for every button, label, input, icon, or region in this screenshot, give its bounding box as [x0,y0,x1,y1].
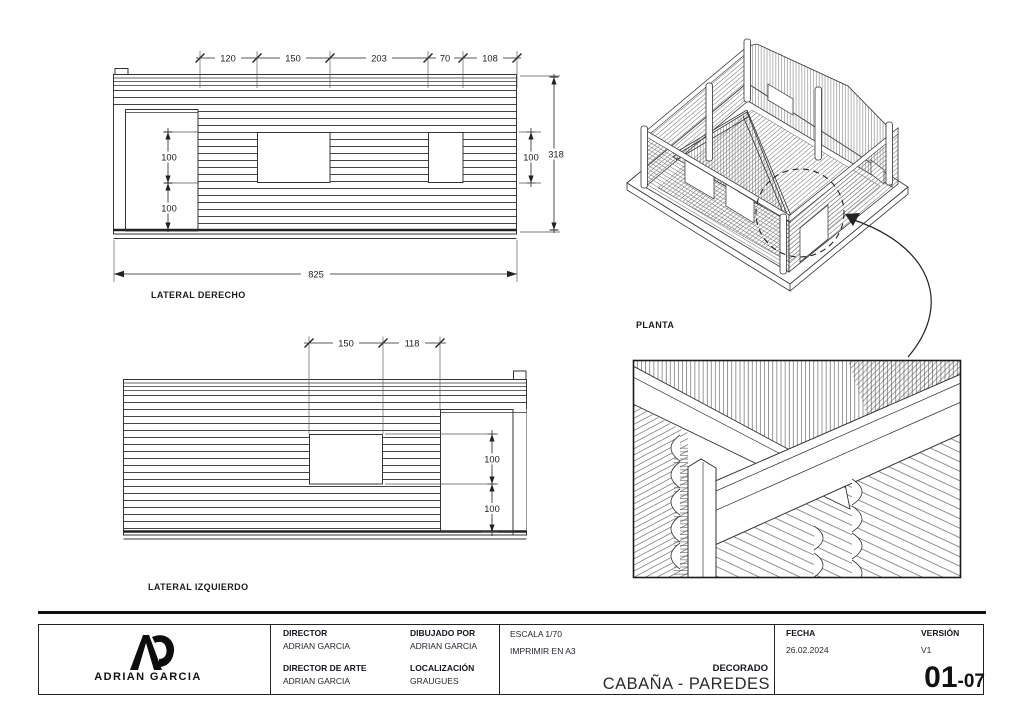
location-label: LOCALIZACIÓN [410,663,474,673]
isometric-cabin-view [600,15,985,360]
elevation-lateral-derecho: 120 150 203 70 108 100 100 100 318 825 [95,40,580,315]
set-title: CABAÑA - PAREDES [510,675,770,694]
label-lateral-derecho: LATERAL DERECHO [151,290,246,300]
title-block-divider [774,624,775,695]
svg-text:100: 100 [523,153,539,163]
label-lateral-izquierdo: LATERAL IZQUIERDO [148,582,248,592]
detail-leader-line [851,219,931,357]
svg-text:825: 825 [308,270,324,280]
title-block-divider [270,624,271,695]
svg-text:203: 203 [371,54,387,64]
title-block-divider [499,624,500,695]
logo-name: ADRIAN GARCIA [92,671,204,683]
date-value: 26.02.2024 [786,645,829,655]
version-value: V1 [921,645,931,655]
svg-text:100: 100 [484,504,500,514]
drawn-by-label: DIBUJADO POR [410,628,475,638]
sheet-number: 01-07 [924,663,985,693]
elevation-lateral-izquierdo: 150 118 100 100 [95,335,580,600]
log-corner-detail-view [625,350,980,595]
svg-text:118: 118 [405,339,420,349]
svg-text:100: 100 [484,455,500,465]
adrian-garcia-logo-icon [128,634,176,672]
director-label: DIRECTOR [283,628,327,638]
scale-text: ESCALA 1/70 [510,629,562,639]
set-label: DECORADO [570,663,768,674]
svg-text:150: 150 [338,339,354,349]
sheet-number-minor: 07 [964,671,985,692]
svg-text:70: 70 [440,54,450,64]
svg-text:100: 100 [161,153,177,163]
date-label: FECHA [786,628,815,638]
version-label: VERSIÓN [921,628,959,638]
svg-text:318: 318 [548,150,564,160]
label-planta: PLANTA [636,320,674,330]
drawing-sheet: 120 150 203 70 108 100 100 100 318 825 L… [0,0,1024,723]
director-value: ADRIAN GARCIA [283,641,350,651]
title-block-top-rule [38,611,986,614]
svg-text:150: 150 [285,54,301,64]
svg-text:108: 108 [482,54,498,64]
sheet-number-major: 01 [924,661,957,694]
art-director-value: ADRIAN GARCIA [283,676,350,686]
svg-text:100: 100 [161,204,177,214]
art-director-label: DIRECTOR DE ARTE [283,663,367,673]
location-value: GRAUGUES [410,676,459,686]
drawn-by-value: ADRIAN GARCIA [410,641,477,651]
svg-text:120: 120 [220,54,236,64]
print-format-text: IMPRIMIR EN A3 [510,646,576,656]
